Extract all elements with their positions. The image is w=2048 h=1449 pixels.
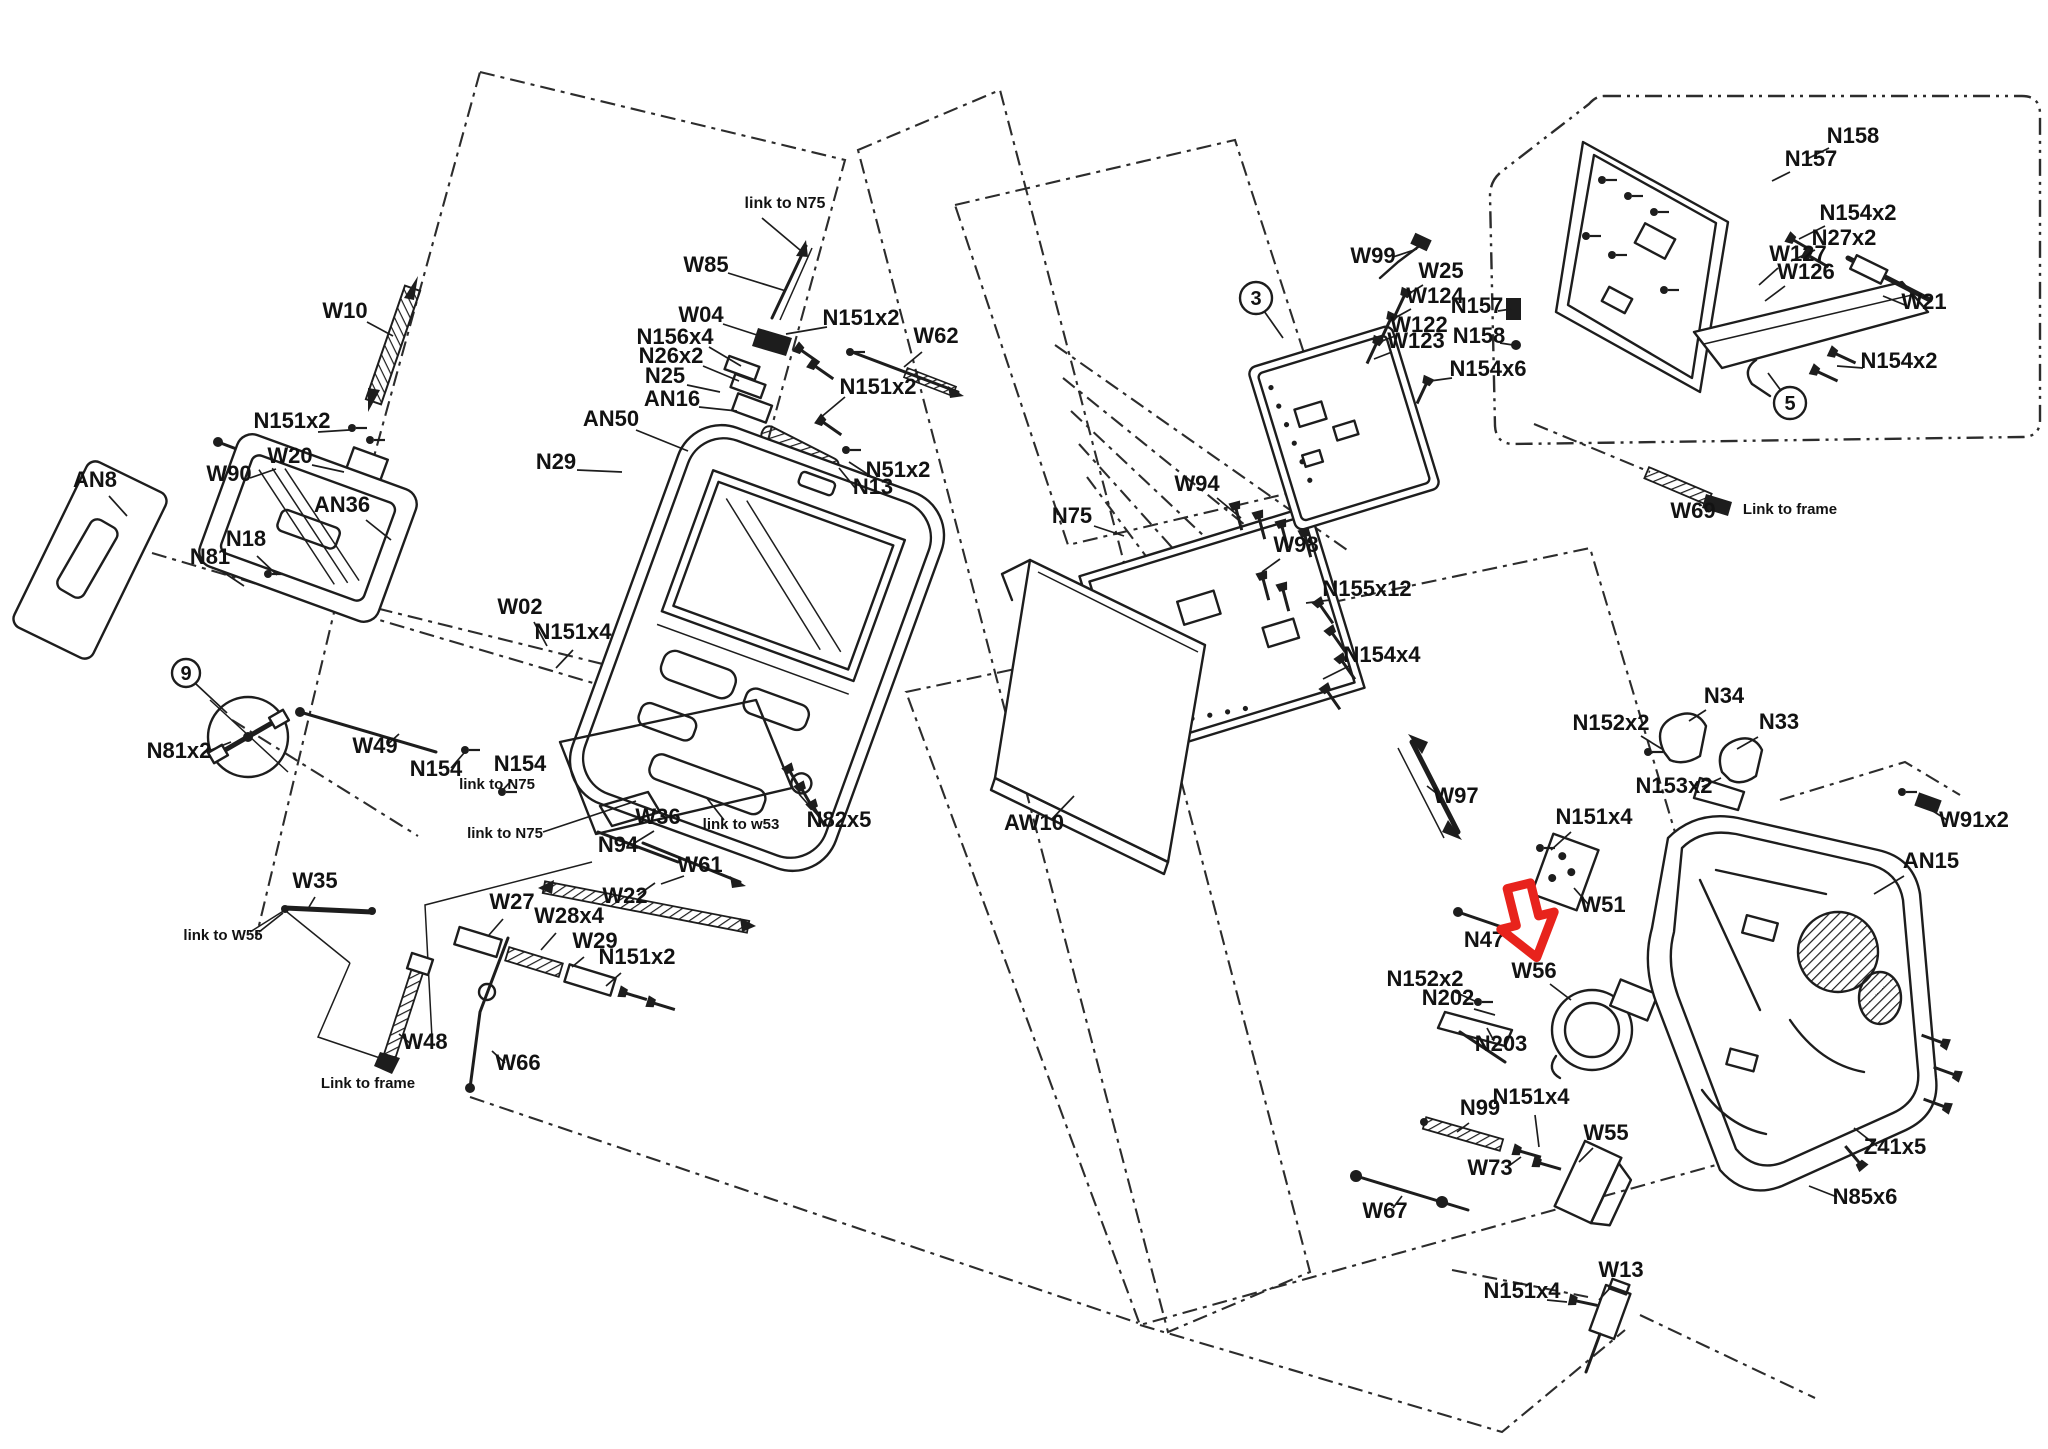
part-label-w123: W123 (1387, 328, 1444, 353)
part-label-link-to-frame: Link to frame (321, 1075, 415, 1092)
shaft-w27-w29 (454, 927, 676, 1015)
part-label-n154: N154 (410, 756, 463, 781)
part-label-w98: W98 (1273, 532, 1318, 557)
leader-line (762, 218, 800, 250)
part-label-n151x2: N151x2 (253, 408, 330, 433)
leader-line (1689, 710, 1706, 721)
board-circle3 (1247, 233, 1440, 531)
part-label-n154x6: N154x6 (1449, 356, 1526, 381)
part-label-n85x6: N85x6 (1833, 1184, 1898, 1209)
leader-line (309, 897, 315, 907)
part-label-n158: N158 (1453, 323, 1506, 348)
part-label-w36: W36 (635, 804, 680, 829)
part-label-w25: W25 (1418, 258, 1463, 283)
part-label-n151x4: N151x4 (1555, 804, 1633, 829)
part-label-w51: W51 (1580, 892, 1625, 917)
leader-line (541, 933, 556, 950)
part-label-link-to-n75: link to N75 (745, 195, 826, 212)
part-label-n154: N154 (494, 751, 547, 776)
part-label-n151x4: N151x4 (1483, 1278, 1561, 1303)
leader-line (723, 324, 760, 336)
inset-main-board (1556, 142, 1728, 392)
part-label-w69: W69 (1670, 498, 1715, 523)
part-label-n81x2: N81x2 (147, 738, 212, 763)
part-label-an15: AN15 (1903, 848, 1959, 873)
part-label-link-to-frame: Link to frame (1743, 501, 1837, 518)
leader-line (1772, 172, 1790, 181)
part-label-n25: N25 (645, 363, 685, 388)
part-label-link-to-n75: link to N75 (459, 776, 535, 793)
part-label-an50: AN50 (583, 406, 639, 431)
part-label-an36: AN36 (314, 492, 370, 517)
part-label-an8: AN8 (73, 467, 117, 492)
part-label-n202: N202 (1422, 985, 1475, 1010)
callout-leader (196, 684, 227, 713)
part-label-an16: AN16 (644, 386, 700, 411)
leader-line (1535, 1115, 1539, 1147)
part-label-w55: W55 (1583, 1120, 1628, 1145)
leader-line (489, 919, 503, 935)
part-label-w27: W27 (489, 889, 534, 914)
screw-w48 (374, 953, 433, 1074)
part-label-w21: W21 (1901, 289, 1946, 314)
part-label-n154x2: N154x2 (1860, 348, 1937, 373)
part-label-w85: W85 (683, 252, 728, 277)
part-label-z41x5: Z41x5 (1864, 1134, 1926, 1159)
leader-line (728, 273, 786, 291)
leader-line (636, 430, 688, 451)
part-label-w66: W66 (495, 1050, 540, 1075)
part-label-w02: W02 (497, 594, 542, 619)
leader-line (661, 876, 684, 884)
part-label-n152x2: N152x2 (1572, 710, 1649, 735)
part-label-w62: W62 (913, 323, 958, 348)
part-label-n151x2: N151x2 (598, 944, 675, 969)
leader-line (572, 957, 584, 967)
part-label-w67: W67 (1362, 1198, 1407, 1223)
part-label-n154x2: N154x2 (1819, 200, 1896, 225)
part-label-link-to-w55: link to W55 (183, 927, 262, 944)
callout-leader (1264, 311, 1283, 338)
part-label-w99: W99 (1350, 243, 1395, 268)
leader-line (1094, 526, 1124, 536)
part-label-aw10: AW10 (1004, 810, 1064, 835)
part-label-n13: N13 (853, 474, 893, 499)
bracket-w04 (752, 328, 792, 356)
part-label-w35: W35 (292, 868, 337, 893)
part-label-n29: N29 (536, 449, 576, 474)
part-label-n34: N34 (1704, 683, 1745, 708)
diagram-canvas: link to N75W85W10W04N151x2W62N156x4N26x2… (0, 0, 2048, 1449)
callout-number-5: 5 (1784, 393, 1795, 415)
detail-inset-box (1490, 96, 2040, 444)
part-label-w10: W10 (322, 298, 367, 323)
part-label-n82x5: N82x5 (807, 807, 872, 832)
part-label-w94: W94 (1174, 471, 1220, 496)
leader-line (1550, 984, 1571, 1000)
leader-line (1474, 1009, 1495, 1015)
part-label-w97: W97 (1433, 783, 1478, 808)
part-label-w28x4: W28x4 (534, 903, 604, 928)
part-label-n154x4: N154x4 (1343, 642, 1421, 667)
part-label-n151x4: N151x4 (1492, 1084, 1570, 1109)
part-label-w56: W56 (1511, 958, 1556, 983)
part-label-n33: N33 (1759, 709, 1799, 734)
console-an50 (557, 412, 957, 884)
part-label-w13: W13 (1598, 1257, 1643, 1282)
part-label-link-to-n75: link to N75 (467, 825, 543, 842)
callout-number-9: 9 (180, 663, 191, 685)
leader-line (820, 397, 845, 418)
part-label-w20: W20 (267, 443, 312, 468)
part-label-w49: W49 (352, 733, 397, 758)
part-label-w61: W61 (677, 852, 722, 877)
spacer-stack-an16 (725, 341, 845, 439)
strut-w10 (366, 276, 420, 412)
leader-line (259, 913, 283, 932)
part-label-n153x2: N153x2 (1635, 773, 1712, 798)
part-label-w22: W22 (602, 883, 647, 908)
part-label-w73: W73 (1467, 1155, 1512, 1180)
rod-w85 (772, 240, 812, 320)
exploded-parts-diagram: link to N75W85W10W04N151x2W62N156x4N26x2… (0, 0, 2048, 1449)
part-label-w90: W90 (206, 461, 251, 486)
part-label-w91x2: W91x2 (1939, 807, 2009, 832)
part-label-n157: N157 (1785, 146, 1838, 171)
part-label-n158: N158 (1827, 123, 1880, 148)
leader-line (1837, 366, 1863, 368)
leader-line (904, 352, 922, 367)
part-label-n203: N203 (1475, 1031, 1528, 1056)
leader-line (1759, 268, 1778, 285)
leader-line (577, 470, 622, 472)
part-label-n157: N157 (1451, 293, 1504, 318)
part-label-n81: N81 (190, 544, 230, 569)
part-label-n151x4: N151x4 (534, 619, 612, 644)
callout-number-3: 3 (1250, 288, 1261, 310)
part-label-w48: W48 (402, 1029, 447, 1054)
part-label-n94: N94 (598, 832, 639, 857)
part-label-n18: N18 (226, 526, 266, 551)
part-label-w126: W126 (1777, 259, 1834, 284)
connector-w13 (1568, 1277, 1633, 1372)
part-label-n151x2: N151x2 (839, 374, 916, 399)
leader-line (786, 327, 827, 334)
part-label-n75: N75 (1052, 503, 1092, 528)
blower-w56 (1552, 980, 1658, 1078)
part-label-n155x12: N155x12 (1322, 576, 1411, 601)
leader-line (1765, 286, 1785, 301)
part-label-n151x2: N151x2 (822, 305, 899, 330)
part-label-link-to-w53: link to w53 (703, 816, 780, 833)
hinge-detail-circle-9 (208, 697, 289, 777)
leader-line (709, 347, 741, 366)
